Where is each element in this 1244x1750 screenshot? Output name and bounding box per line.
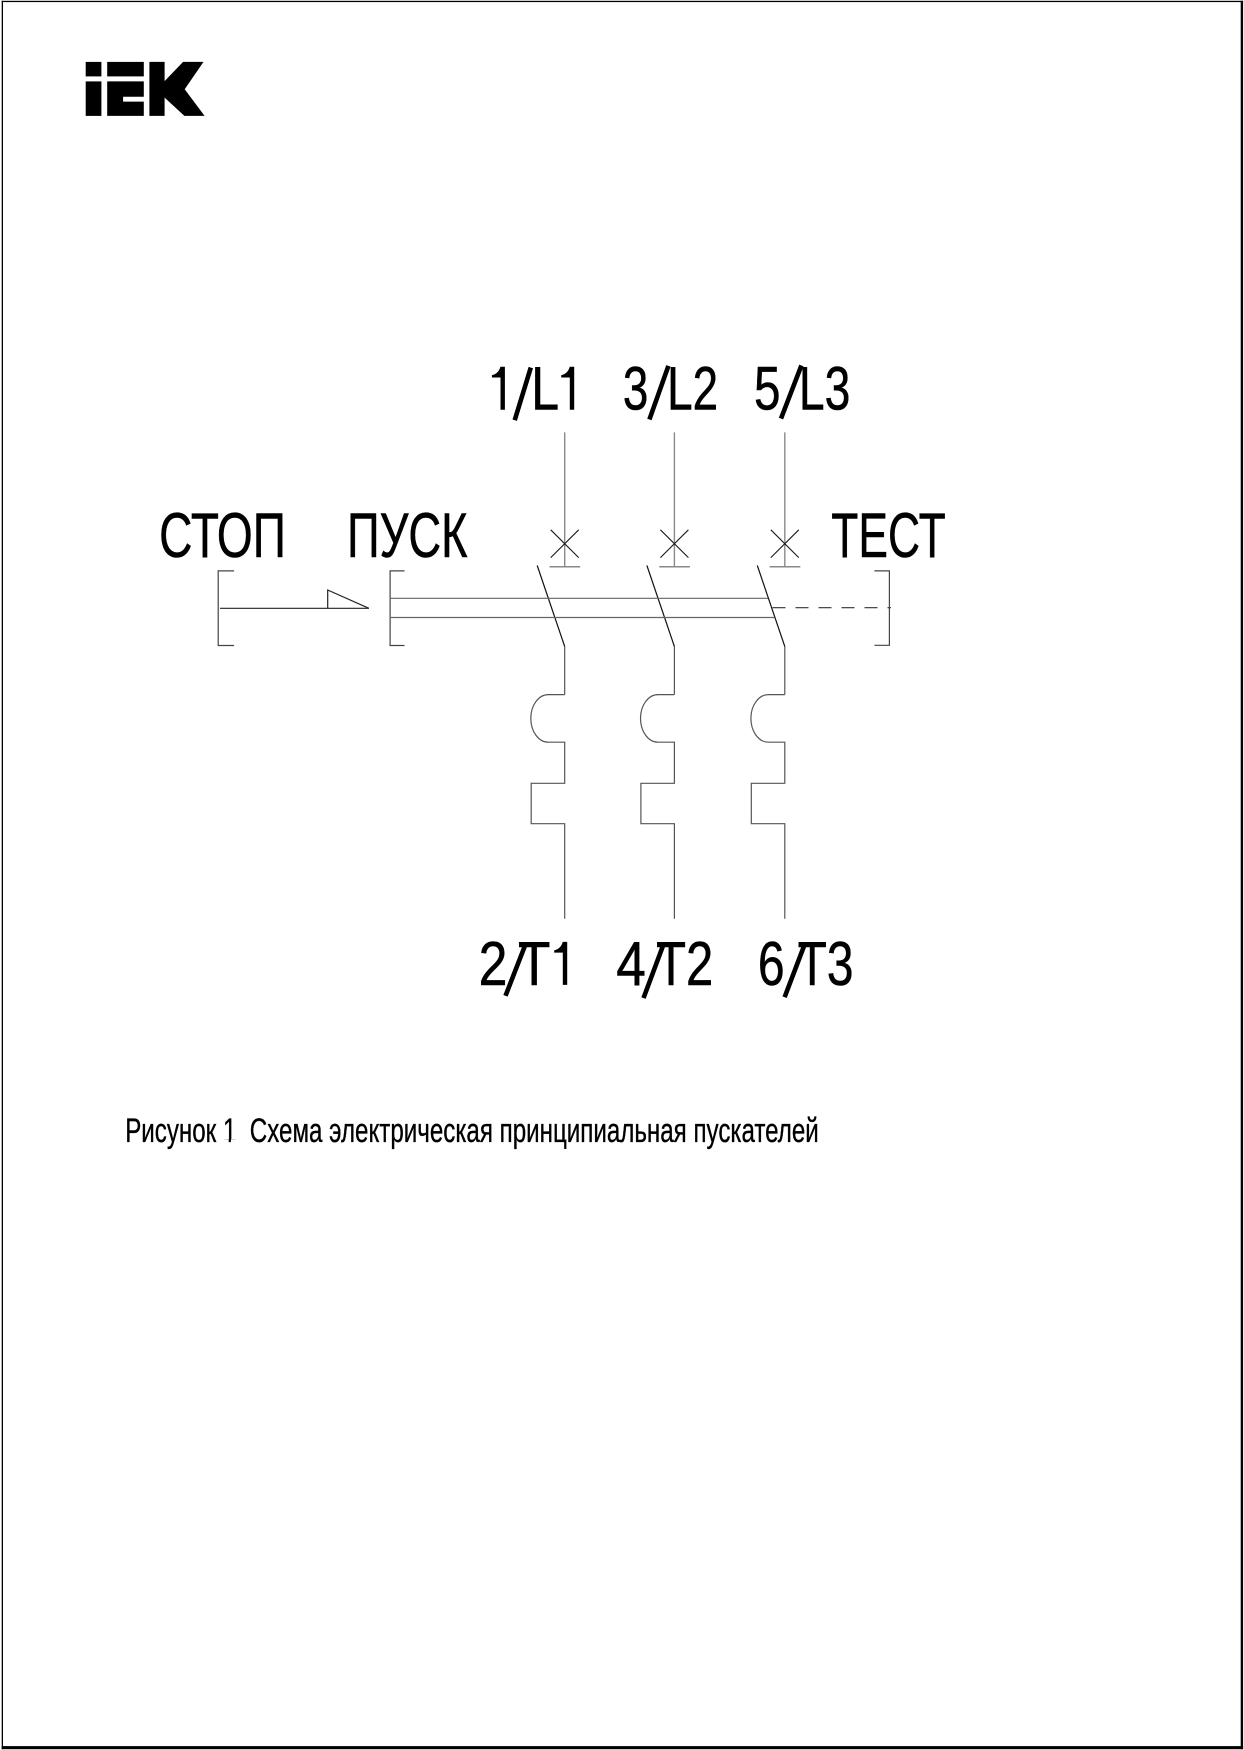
svg-text:4: 4 [616, 930, 646, 999]
svg-text:L: L [531, 355, 559, 423]
svg-text:3: 3 [623, 355, 648, 423]
svg-text:T: T [518, 930, 550, 999]
svg-text:5: 5 [754, 355, 781, 423]
svg-text:2: 2 [479, 930, 508, 999]
svg-text:L2: L2 [667, 355, 718, 423]
svg-text:T3: T3 [798, 930, 854, 999]
svg-text:ТЕСТ: ТЕСТ [831, 501, 945, 571]
svg-text:Рисунок 1 Схема электрическая: Рисунок 1 Схема электрическая принципиал… [125, 1112, 819, 1150]
svg-text:L3: L3 [799, 355, 850, 423]
svg-text:T2: T2 [656, 930, 713, 999]
svg-text:ПУСК: ПУСК [347, 501, 468, 571]
svg-text:СТОП: СТОП [159, 501, 286, 571]
svg-text:6: 6 [758, 930, 785, 999]
